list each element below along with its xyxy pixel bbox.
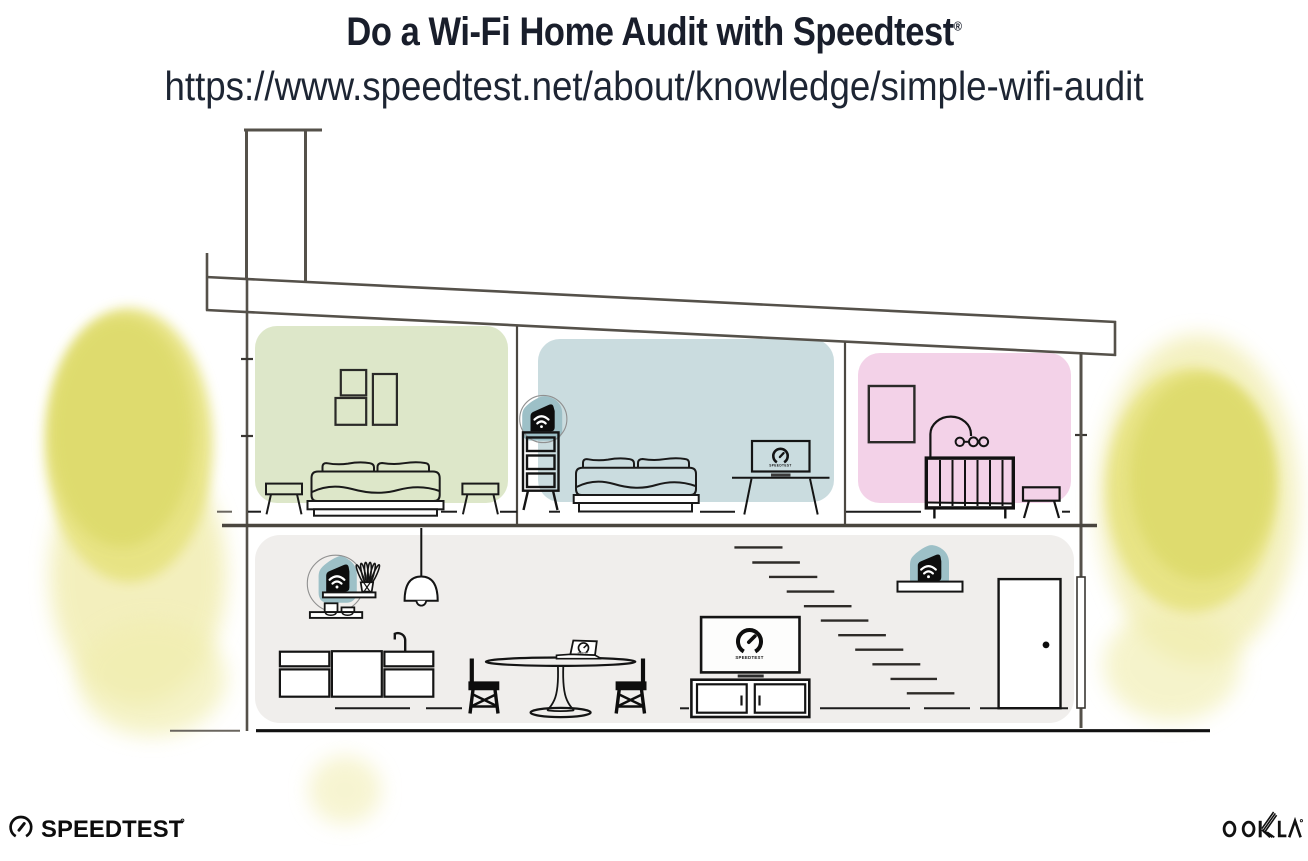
svg-text:SPEEDTEST: SPEEDTEST — [578, 652, 590, 654]
svg-text:SPEEDTEST: SPEEDTEST — [735, 655, 763, 660]
svg-text:SPEEDTEST: SPEEDTEST — [41, 816, 184, 843]
svg-text:SPEEDTEST: SPEEDTEST — [769, 464, 792, 468]
